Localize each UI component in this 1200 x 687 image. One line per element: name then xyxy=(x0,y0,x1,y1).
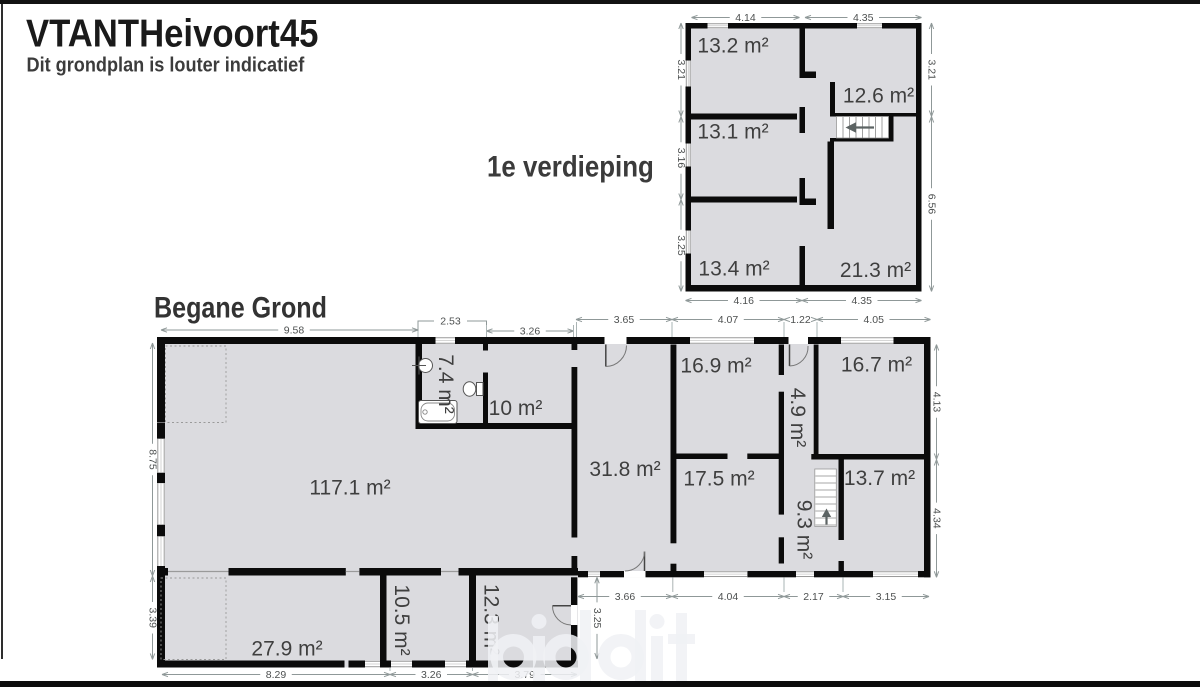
svg-text:31.8 m²: 31.8 m² xyxy=(589,458,660,481)
svg-text:8.29: 8.29 xyxy=(266,669,287,681)
svg-text:27.9 m²: 27.9 m² xyxy=(251,638,322,661)
svg-text:4.04: 4.04 xyxy=(718,591,739,603)
svg-text:117.1 m²: 117.1 m² xyxy=(309,477,390,500)
svg-text:Begane Grond: Begane Grond xyxy=(154,290,327,324)
svg-text:3.25: 3.25 xyxy=(675,235,687,256)
svg-text:9.3 m²: 9.3 m² xyxy=(793,500,816,560)
svg-text:4.34: 4.34 xyxy=(931,508,943,529)
svg-text:3.26: 3.26 xyxy=(421,669,442,681)
svg-text:1.22: 1.22 xyxy=(790,314,811,326)
svg-text:4.16: 4.16 xyxy=(734,295,755,307)
svg-text:4.35: 4.35 xyxy=(852,295,873,307)
svg-text:4.05: 4.05 xyxy=(864,314,885,326)
svg-text:9.58: 9.58 xyxy=(284,325,305,337)
svg-text:3.25: 3.25 xyxy=(591,608,603,629)
svg-text:12.6 m²: 12.6 m² xyxy=(843,85,914,108)
svg-text:2.53: 2.53 xyxy=(440,316,461,328)
svg-text:3.26: 3.26 xyxy=(520,326,541,338)
svg-text:3.21: 3.21 xyxy=(675,60,687,81)
svg-text:16.9 m²: 16.9 m² xyxy=(680,355,751,378)
svg-text:Dit grondplan is louter indica: Dit grondplan is louter indicatief xyxy=(27,55,305,77)
svg-text:2.17: 2.17 xyxy=(803,591,824,603)
svg-text:4.35: 4.35 xyxy=(853,12,874,24)
svg-text:3.65: 3.65 xyxy=(614,314,635,326)
svg-text:13.4 m²: 13.4 m² xyxy=(698,258,769,281)
svg-text:21.3 m²: 21.3 m² xyxy=(840,259,911,282)
svg-text:8.75: 8.75 xyxy=(147,449,159,470)
svg-text:10.5 m²: 10.5 m² xyxy=(390,584,413,655)
svg-text:VTANTHeivoort45: VTANTHeivoort45 xyxy=(26,12,318,55)
svg-text:17.5 m²: 17.5 m² xyxy=(683,468,754,491)
svg-text:4.9 m²: 4.9 m² xyxy=(786,388,809,448)
svg-text:3.16: 3.16 xyxy=(675,148,687,169)
svg-text:4.14: 4.14 xyxy=(735,12,756,24)
svg-text:13.7 m²: 13.7 m² xyxy=(844,467,915,490)
svg-text:13.2 m²: 13.2 m² xyxy=(697,35,768,58)
svg-text:7.4 m²: 7.4 m² xyxy=(434,354,457,414)
svg-text:4.13: 4.13 xyxy=(931,392,943,413)
svg-text:6.56: 6.56 xyxy=(926,194,938,215)
svg-text:4.07: 4.07 xyxy=(718,314,739,326)
svg-text:3.15: 3.15 xyxy=(876,591,897,603)
svg-text:3.66: 3.66 xyxy=(615,591,636,603)
svg-text:3.39: 3.39 xyxy=(147,608,159,629)
svg-text:1e verdieping: 1e verdieping xyxy=(487,150,654,183)
svg-text:3.21: 3.21 xyxy=(926,60,938,81)
svg-text:10 m²: 10 m² xyxy=(489,397,543,420)
svg-text:16.7 m²: 16.7 m² xyxy=(841,353,912,376)
svg-text:13.1 m²: 13.1 m² xyxy=(697,121,768,144)
